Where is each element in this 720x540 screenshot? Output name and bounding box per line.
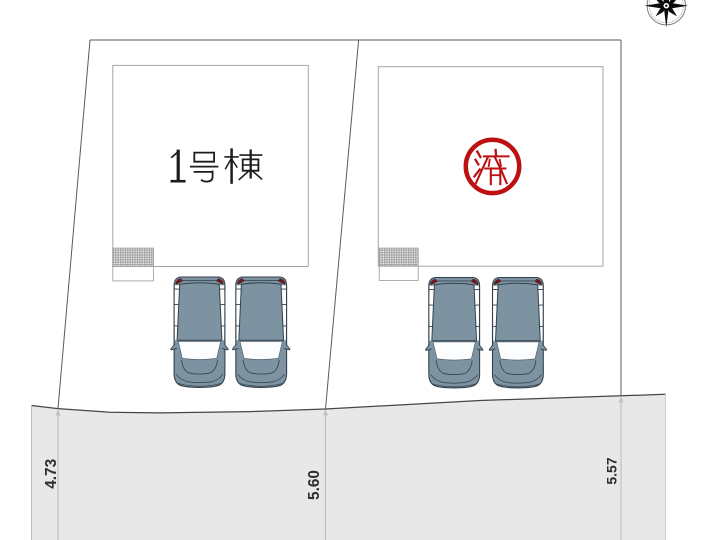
svg-text:4.73: 4.73 [43,459,60,489]
svg-text:5.57: 5.57 [604,457,620,484]
svg-text:5.60: 5.60 [306,470,323,500]
